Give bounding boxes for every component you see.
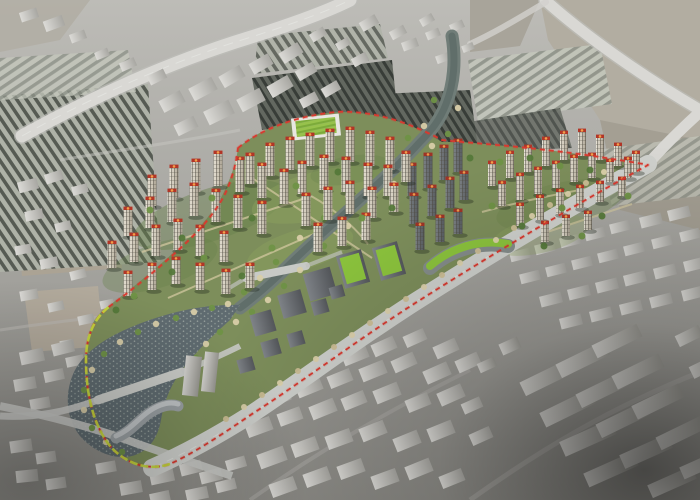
masterplan-aerial-render [0, 0, 700, 500]
scene-root [0, 0, 700, 500]
vignette [0, 0, 700, 500]
scene-svg [0, 0, 700, 500]
